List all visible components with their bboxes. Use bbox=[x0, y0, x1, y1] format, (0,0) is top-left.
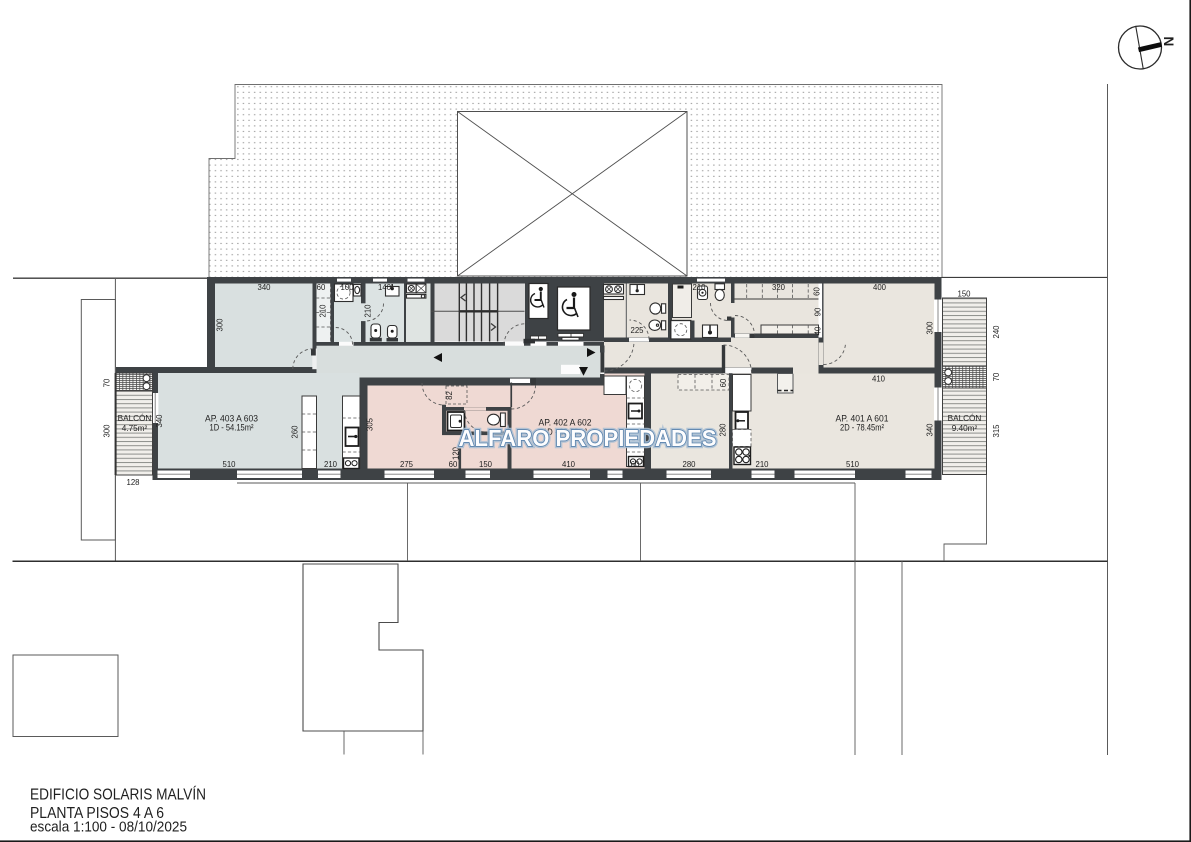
svg-text:60: 60 bbox=[813, 287, 822, 296]
svg-text:275: 275 bbox=[400, 460, 414, 469]
svg-text:BALCÓN: BALCÓN bbox=[118, 413, 152, 423]
svg-text:340: 340 bbox=[926, 423, 935, 437]
svg-text:210: 210 bbox=[692, 283, 706, 292]
svg-text:4.75m²: 4.75m² bbox=[122, 424, 148, 433]
svg-text:210: 210 bbox=[319, 304, 328, 318]
svg-text:60: 60 bbox=[631, 460, 640, 469]
svg-text:70: 70 bbox=[103, 378, 112, 387]
svg-text:410: 410 bbox=[562, 460, 576, 469]
svg-text:100: 100 bbox=[340, 283, 354, 292]
svg-text:150: 150 bbox=[957, 290, 971, 299]
svg-text:90: 90 bbox=[814, 307, 823, 316]
svg-text:40: 40 bbox=[814, 326, 823, 335]
svg-text:escala 1:100 - 08/10/2025: escala 1:100 - 08/10/2025 bbox=[30, 820, 187, 836]
svg-text:210: 210 bbox=[364, 304, 373, 318]
svg-text:N: N bbox=[1161, 37, 1176, 47]
svg-text:510: 510 bbox=[846, 460, 860, 469]
svg-text:128: 128 bbox=[126, 478, 139, 487]
svg-text:280: 280 bbox=[719, 423, 728, 437]
svg-text:ALFARO PROPIEDADES: ALFARO PROPIEDADES bbox=[459, 425, 717, 451]
svg-text:305: 305 bbox=[366, 417, 375, 431]
svg-text:140: 140 bbox=[378, 283, 392, 292]
svg-text:150: 150 bbox=[479, 460, 493, 469]
svg-text:EDIFICIO SOLARIS MALVÍN: EDIFICIO SOLARIS MALVÍN bbox=[30, 785, 206, 804]
svg-text:225: 225 bbox=[630, 326, 644, 335]
svg-text:1D - 54.15m²: 1D - 54.15m² bbox=[210, 422, 254, 432]
svg-text:210: 210 bbox=[755, 460, 769, 469]
svg-text:60: 60 bbox=[449, 460, 458, 469]
svg-text:260: 260 bbox=[291, 425, 300, 439]
svg-text:410: 410 bbox=[872, 375, 886, 384]
svg-text:70: 70 bbox=[992, 372, 1001, 381]
svg-text:280: 280 bbox=[682, 460, 696, 469]
svg-text:300: 300 bbox=[926, 321, 935, 335]
svg-text:82: 82 bbox=[445, 391, 454, 400]
svg-text:340: 340 bbox=[155, 414, 164, 428]
svg-text:510: 510 bbox=[222, 460, 236, 469]
svg-text:315: 315 bbox=[992, 424, 1001, 438]
svg-text:210: 210 bbox=[324, 460, 338, 469]
svg-text:400: 400 bbox=[873, 283, 887, 292]
svg-text:60: 60 bbox=[317, 283, 326, 292]
svg-text:BALCÓN: BALCÓN bbox=[948, 413, 982, 423]
svg-text:300: 300 bbox=[103, 424, 112, 438]
svg-text:340: 340 bbox=[257, 283, 271, 292]
svg-text:300: 300 bbox=[216, 318, 225, 332]
svg-text:60: 60 bbox=[719, 378, 728, 387]
svg-text:9.40m²: 9.40m² bbox=[952, 424, 978, 433]
svg-text:320: 320 bbox=[772, 283, 786, 292]
svg-text:2D - 78.45m²: 2D - 78.45m² bbox=[840, 422, 884, 432]
svg-text:240: 240 bbox=[992, 325, 1001, 339]
